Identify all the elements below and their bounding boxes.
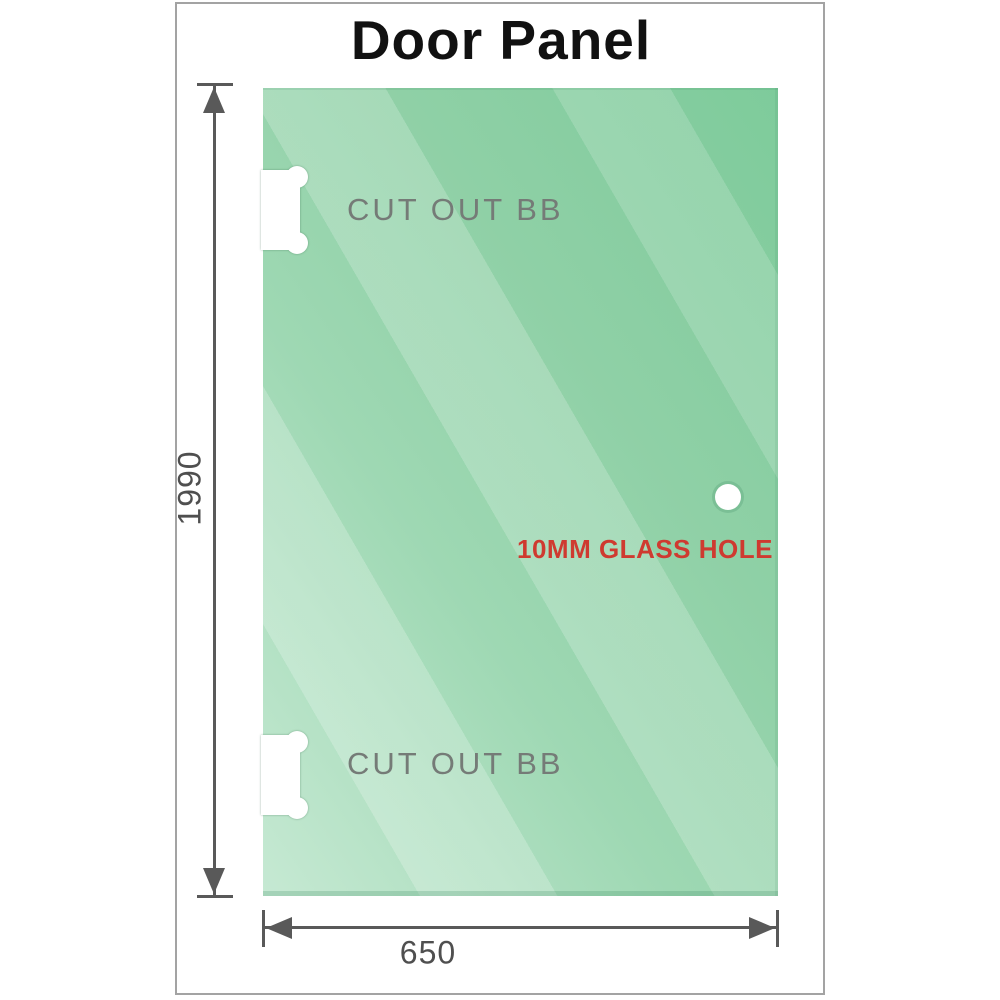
arrow-right-icon bbox=[749, 917, 775, 939]
page-title: Door Panel bbox=[175, 8, 827, 72]
width-dimension-cap-left bbox=[262, 910, 265, 947]
door-panel-diagram: Door Panel CUT OUT BB CUT OUT BB 10MM GL… bbox=[0, 0, 1000, 1000]
height-dimension-cap-bottom bbox=[197, 895, 233, 898]
hinge-cutout-top-lobe-lower bbox=[286, 232, 308, 254]
width-dimension-value: 650 bbox=[400, 935, 456, 972]
hinge-cutout-top bbox=[261, 170, 300, 250]
glass-hole-label: 10MM GLASS HOLE bbox=[517, 534, 773, 565]
cutout-label-bottom: CUT OUT BB bbox=[347, 746, 607, 782]
width-dimension-cap-right bbox=[776, 910, 779, 947]
hinge-cutout-bottom-lobe-lower bbox=[286, 797, 308, 819]
height-dimension-cap-top bbox=[197, 83, 233, 86]
cutout-label-top: CUT OUT BB bbox=[347, 192, 607, 228]
height-dimension-value: 1990 bbox=[172, 450, 209, 525]
arrow-down-icon bbox=[203, 868, 225, 894]
width-dimension-line bbox=[265, 926, 776, 929]
hinge-cutout-bottom-lobe-upper bbox=[286, 731, 308, 753]
hinge-cutout-top-lobe-upper bbox=[286, 166, 308, 188]
glass-hole bbox=[715, 484, 741, 510]
height-dimension-line bbox=[213, 86, 216, 896]
arrow-left-icon bbox=[266, 917, 292, 939]
arrow-up-icon bbox=[203, 87, 225, 113]
hinge-cutout-bottom bbox=[261, 735, 300, 815]
